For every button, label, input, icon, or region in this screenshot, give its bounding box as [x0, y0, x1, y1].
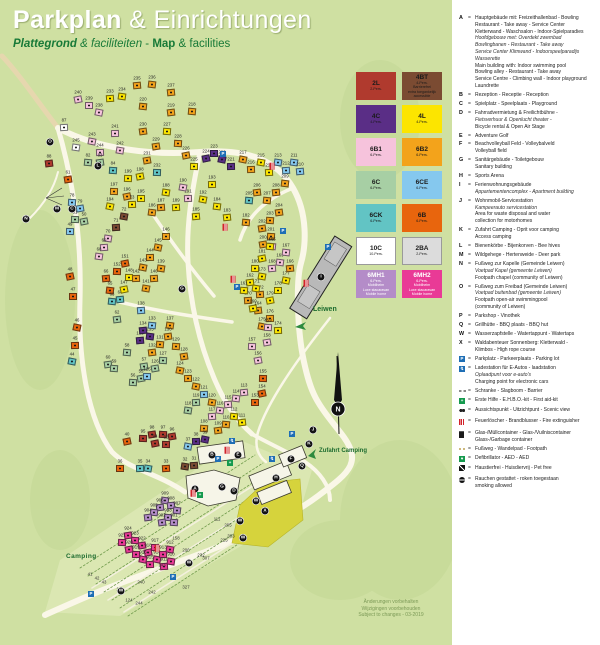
plot-number: 128 [180, 348, 187, 353]
plot [164, 332, 173, 340]
plot [167, 432, 176, 440]
legend-entry-text: Wohnmobil-ServicestationKampeerauto serv… [475, 198, 597, 225]
legend-entry-line: Wasserette [475, 56, 597, 63]
plot-number: 236 [148, 76, 155, 81]
plot [192, 438, 200, 445]
legend-entry-line: Restaurant - Take away - Service Center [475, 22, 597, 29]
legend-entry-line: Rezeption - Receptie - Reception [475, 92, 597, 99]
legend-entry-line: Wildgehege - Hertenweide - Deer park [475, 252, 597, 259]
map-footnote: Änderungen vorbehaltenWijzigingen voorbe… [330, 599, 452, 619]
plot-number: 174 [274, 322, 281, 327]
plot-number: 204 [275, 204, 282, 209]
legend-entry-text: Adventure Golf [475, 133, 597, 140]
plot [124, 175, 132, 182]
legend-cell-sub: 2-Pers. [370, 87, 382, 91]
plot-number: 72 [122, 208, 127, 213]
legend-letter-g: G [459, 157, 468, 171]
legend-entry-line: Ladestation für E-Autos - laadstation [475, 365, 597, 372]
equals-sign: = [468, 407, 475, 416]
plot [265, 169, 273, 176]
equals-sign: = [468, 252, 475, 259]
legend-cell-sub: accessible [414, 94, 431, 98]
legend-symbol [459, 430, 468, 444]
petfree-icon [459, 465, 465, 471]
plot-number: 195 [137, 190, 144, 195]
plot-number: 211 [291, 154, 298, 159]
facility-marker-i: I [318, 274, 325, 281]
plot-number: 917 [151, 539, 158, 544]
legend-letter-n: N [459, 261, 468, 281]
plot-number: 124 [176, 362, 183, 367]
legend-entry-line: Rauchen gestattet - roken toegestaan [475, 476, 597, 483]
equals-sign: = [468, 227, 475, 241]
legend-cell-6mh2: 6MH26-Pers.MobilheimLuxe stacaravanMobil… [402, 270, 442, 298]
plot-number: 907 [173, 502, 180, 507]
legend-entry: =Feuerlöscher - Brandblusser - Fire exti… [459, 418, 597, 428]
plot [139, 127, 148, 135]
plot-number: 93 [164, 436, 169, 441]
pitch-number: 242 [148, 590, 155, 595]
plot [105, 202, 114, 210]
plot-number: 31 [192, 457, 197, 462]
plot [139, 435, 147, 442]
plot [148, 208, 157, 216]
plot [110, 188, 118, 195]
plot-number: 194 [106, 198, 113, 203]
plot [157, 264, 166, 272]
plot-number: 209 [281, 175, 288, 180]
plot-number: 32 [183, 458, 188, 463]
pitch-number: 124 [125, 598, 132, 603]
plot [238, 419, 247, 426]
legend-cell-6b1: 6B16-Pers. [356, 138, 396, 166]
plot-number: 116 [217, 402, 224, 407]
legend-cell-6ce: 6CE6-Pers. [402, 171, 442, 199]
legend-entry-line: Bicycle rental & Open Air Stage [475, 124, 597, 131]
title-main: Parkplan [13, 6, 122, 34]
equals-sign: = [468, 198, 475, 225]
plot [123, 349, 132, 356]
legend-entry-text: Fußweg zur Kapelle (Gemeinde Leiwen)Voet… [475, 261, 597, 281]
legend-entry-text: Spielplatz - Speelplaats - Playground [475, 101, 597, 108]
plot [162, 188, 171, 196]
plot-number: 159 [264, 319, 271, 324]
pitch-number: 307 [202, 556, 209, 561]
plot [242, 219, 251, 226]
facility-marker-f: F [288, 456, 295, 463]
pitch-number: 303 [227, 534, 234, 539]
fireext-icon [459, 419, 464, 426]
plot [198, 195, 207, 203]
plot-number: 212 [282, 162, 289, 167]
plot-number: 129 [172, 338, 179, 343]
plot-number: 190 [179, 179, 186, 184]
plot-number: 152 [113, 263, 120, 268]
plot-number: 50 [82, 213, 87, 218]
legend-cell-sub: Mobile home [366, 292, 387, 296]
legend-cell-sub: 6-Pers. [370, 153, 382, 157]
parking-icon: P [234, 284, 240, 290]
plot-number: 35 [138, 460, 143, 465]
plot [266, 243, 275, 250]
plot [45, 160, 54, 167]
legend-letter-i: I [459, 182, 468, 196]
first-aid-icon: + [197, 492, 203, 498]
park-map: N 24023923824124324424287245233234235236… [0, 0, 452, 645]
legend-cell-code: 4L [418, 113, 426, 120]
watertap-marker: W [237, 518, 244, 525]
legend-letter-o: O [459, 284, 468, 311]
plot-number: 120 [208, 394, 215, 399]
plot-number: 33 [164, 460, 169, 465]
legend-letter-f: F [459, 141, 468, 155]
pitch-number: 205 [224, 523, 231, 528]
plot [148, 349, 157, 356]
plot-number: 97 [161, 426, 166, 431]
legend-cell-sub: 2-Pers. [416, 252, 428, 256]
plot [240, 287, 248, 294]
plot-number: 133 [148, 317, 155, 322]
plot-number: 62 [115, 311, 120, 316]
plot [60, 124, 68, 131]
legend-entry: I=FerienwohnungsgebäudeAppartementencomp… [459, 182, 597, 196]
plot-number: 166 [286, 260, 293, 265]
plot [268, 265, 277, 272]
smoking-icon [459, 477, 465, 483]
legend-cell-4l: 4L4-Pers. [402, 105, 442, 133]
plot-number: 183 [223, 209, 230, 214]
equals-sign: = [468, 397, 475, 404]
plot-number: 112 [231, 408, 238, 413]
plot [276, 258, 285, 266]
plot [167, 557, 176, 565]
legend-symbol: ♥ [459, 455, 468, 462]
legend-entry-text: Bienenkörbe - Bijenkorven - Bee hives [475, 243, 597, 250]
plot-number: 66 [104, 270, 109, 275]
plot-number: 207 [263, 192, 270, 197]
watertap-marker: W [240, 535, 247, 542]
legend-symbol: ↯ [459, 365, 468, 385]
subtitle-en: Map [152, 38, 175, 50]
plot [167, 109, 176, 116]
plot-number: 134 [139, 322, 146, 327]
plot [240, 389, 249, 396]
plot [94, 108, 103, 116]
plot-number: 177 [282, 272, 289, 277]
plot-number: 237 [167, 84, 174, 89]
legend-entry-line: Service Center Klimwand - Indoorspeelpar… [475, 49, 597, 56]
plot-number: 61 [66, 171, 71, 176]
plot-number: 127 [159, 352, 166, 357]
plot [266, 217, 274, 224]
equals-sign: = [468, 365, 475, 385]
plot [150, 364, 159, 372]
legend-entry-text: Fußweg - Wandelpad - Footpath [475, 446, 597, 453]
equals-sign: = [468, 157, 475, 171]
plot [274, 158, 283, 166]
legend-entry-line: Voetpad Kapel (gemeente Leiwen) [475, 268, 597, 275]
plot [113, 316, 122, 323]
watertap-marker: W [118, 588, 125, 595]
legend-entry: =Rauchen gestattet - roken toegestaansmo… [459, 476, 597, 490]
plot [181, 462, 190, 470]
plot-number: 179 [266, 292, 273, 297]
legend-entry-text: Schranke - Slagboom - Barrier [475, 388, 597, 395]
zufahrt-camping-label: Zufahrt Camping [319, 448, 367, 454]
parking-icon: P [170, 574, 176, 580]
legend-entry-line: Fußweg zum Freibad (Gemeinde Leiwen) [475, 284, 597, 291]
plot-number: 34 [146, 460, 151, 465]
svg-text:N: N [335, 407, 340, 414]
plot [139, 327, 148, 334]
plot [157, 204, 165, 211]
legend-entry-line: Sanitary building [475, 164, 597, 171]
footnote-line: Subject to changes - 03-2019 [330, 612, 452, 619]
plot [150, 275, 158, 282]
plot-number: 108 [200, 420, 207, 425]
plot-number: 88 [47, 155, 52, 160]
legend-entry-line: Service Centre - Climbing wall - Indoor … [475, 76, 597, 83]
plot [210, 150, 218, 157]
plot [248, 343, 256, 350]
plot [115, 146, 124, 154]
zufahrt-arrow-icon [308, 449, 316, 459]
plot [286, 265, 295, 272]
plot [132, 275, 140, 282]
plot-number: 186 [148, 204, 155, 209]
legend-symbol: P [459, 356, 468, 363]
plot-number: 146 [162, 228, 169, 233]
equals-sign: = [468, 92, 475, 99]
plot [247, 166, 255, 173]
plot-number: 56 [131, 374, 136, 379]
legend-symbol [459, 388, 468, 395]
plot-number: 125 [143, 368, 150, 373]
legend-entry-line: Charging point for electronic cars [475, 379, 597, 386]
equals-sign: = [468, 465, 475, 474]
legend-cell-2l: 2L2-Pers. [356, 72, 396, 100]
plot-number: 224 [202, 150, 209, 155]
plot-number: 167 [282, 244, 289, 249]
plot-number: 78 [70, 194, 75, 199]
plot-number: 197 [110, 183, 117, 188]
legend-entry-text: Defibrillator - AED - AED [475, 455, 597, 462]
plot-number: 202 [258, 220, 265, 225]
legend-entry-line: Spielplatz - Speelplaats - Playground [475, 101, 597, 108]
plot [253, 189, 262, 196]
plot [188, 108, 197, 115]
legend-cell-code: 6B [418, 212, 426, 219]
plot-number: 215 [257, 154, 264, 159]
plot-number: 227 [163, 123, 170, 128]
legend-entry-text: Fahrradvermietung & Freilichtbühne -Fiet… [475, 110, 597, 130]
plot [163, 128, 171, 135]
plot-number: 192 [199, 191, 206, 196]
plot [162, 465, 170, 472]
plot-number: 221 [227, 158, 234, 163]
plot-number: 38 [194, 433, 199, 438]
legend-letter-c: C [459, 101, 468, 108]
legend-cell-sub: 6-Pers. [416, 153, 428, 157]
plot-number: 210 [296, 163, 303, 168]
plot [208, 413, 216, 420]
plot-number: 238 [95, 104, 102, 109]
plot [66, 228, 74, 235]
plot-number: 921 [118, 534, 125, 539]
legend-entry-text: Sanitärgebäude - ToiletgebouwSanitary bu… [475, 157, 597, 171]
legend-entry-line: Volleyball field [475, 148, 597, 155]
plot [172, 343, 180, 350]
title-rest: & Einrichtungen [122, 6, 312, 34]
legend-cell-sub: 4-Pers. [416, 120, 428, 124]
plot [119, 212, 128, 220]
legend-letter-w: W [459, 331, 468, 338]
plot-number: 185 [192, 208, 199, 213]
legend-entry: P=Parkshop - Vinothek [459, 313, 597, 320]
pitch-number: 111 [214, 517, 221, 522]
plot [128, 201, 136, 208]
plot-number: 141 [142, 280, 149, 285]
legend-letter-a: A [459, 15, 468, 90]
legend-cell-code: 6CE [416, 179, 429, 186]
facilities-legend-entries: A=Hauptgebäude mit: Freizeithallenbad - … [459, 15, 597, 490]
legend-entry-line: Parkshop - Vinothek [475, 313, 597, 320]
plot-number: 182 [242, 214, 249, 219]
facility-marker-h: H [273, 475, 280, 482]
plot-number: 138 [137, 302, 144, 307]
plot-number: 225 [190, 158, 197, 163]
legend-entry: X=Waldabenteuer Sonnenberg: Kletterwald … [459, 340, 597, 354]
legend-entry-text: Ladestation für E-Autos - laadstationOpl… [475, 365, 597, 385]
legend-entry: B=Rezeption - Receptie - Reception [459, 92, 597, 99]
legend-entry: Q=Grillhütte - BBQ plaats - BBQ hut [459, 322, 597, 329]
legend-entry-text: Wildgehege - Hertenweide - Deer park [475, 252, 597, 259]
plot-number: 904 [144, 509, 151, 514]
fire-extinguisher-icon [231, 276, 236, 283]
plot [264, 324, 272, 331]
plot-number: 203 [266, 212, 273, 217]
legend-cell-sub: 6-Pers. [416, 219, 428, 223]
legend-entry-line: Glass-/Garbage container [475, 437, 597, 444]
equals-sign: = [468, 446, 475, 453]
plot-number: 58 [125, 344, 130, 349]
plot [87, 137, 96, 145]
legend-entry-line: Grillhütte - BBQ plaats - BBQ hut [475, 322, 597, 329]
plot-number: 157 [248, 338, 255, 343]
plot [137, 195, 145, 202]
parking-icon: P [88, 591, 94, 597]
plot-number: 47 [71, 288, 76, 293]
equals-sign: = [468, 388, 475, 395]
plot [252, 284, 261, 292]
plot-number: 208 [272, 184, 279, 189]
pitch-number: 158 [172, 536, 179, 541]
plot-number: 60 [106, 356, 111, 361]
legend-entry: C=Spielplatz - Speelplaats - Playground [459, 101, 597, 108]
plot [207, 398, 216, 406]
subtitle-nl: Plattegrond [13, 38, 77, 50]
plot [156, 341, 165, 348]
legend-symbol: + [459, 397, 468, 404]
fire-extinguisher-icon [225, 447, 230, 454]
equals-sign: = [468, 15, 475, 90]
plot-number: 71 [114, 219, 119, 224]
plot-number: 168 [268, 260, 275, 265]
legend-entry-line: Access camping [475, 234, 597, 241]
legend-entry-line: Beachvolleyball Feld - Volleybalveld [475, 141, 597, 148]
legend-entry-line: Defibrillator - AED - AED [475, 455, 597, 462]
plot-number: 234 [118, 88, 125, 93]
legend-entry-line: Klimbos - High rope course [475, 347, 597, 354]
plot-number: 173 [258, 268, 265, 273]
plot [251, 399, 259, 406]
plot-number: 229 [152, 138, 159, 143]
footnote-line: Wijzigingen voorbehouden [330, 606, 452, 613]
equals-sign: = [468, 340, 475, 354]
plot [69, 293, 77, 300]
plot-number: 36 [118, 460, 123, 465]
facility-marker-m: M [54, 206, 61, 213]
pitch-number: 143 [158, 563, 165, 568]
legend-letter-l: L [459, 243, 468, 250]
plot [116, 465, 124, 472]
plot-number: 46 [75, 319, 80, 324]
plot [162, 441, 170, 448]
plot [281, 276, 290, 284]
plot [139, 103, 148, 110]
connector-road-2 [150, 210, 214, 296]
charging-icon: ↯ [459, 366, 465, 372]
parking-icon: P [280, 228, 286, 234]
plot-number: 130 [164, 328, 171, 333]
pitch-number: 43 [102, 580, 107, 585]
parking-icon: P [289, 431, 295, 437]
legend-entry-line: Fußweg zur Kapelle (Gemeinde Leiwen) [475, 261, 597, 268]
plot-number: 39 [203, 431, 208, 436]
plot [227, 163, 235, 170]
legend-entry: =Fußweg - Wandelpad - Footpath [459, 446, 597, 453]
plot-number: 126 [151, 360, 158, 365]
fire-extinguisher-icon [155, 545, 160, 552]
legend-cell-sub: 6-Pers. [416, 186, 428, 190]
pitch-number: 41 [88, 572, 93, 577]
plot-number: 201 [267, 228, 274, 233]
plot [191, 382, 200, 390]
equals-sign: = [468, 455, 475, 462]
facility-marker-c: C [69, 206, 76, 213]
legend-entry: E=Adventure Golf [459, 133, 597, 140]
equals-sign: = [468, 261, 475, 281]
plot-number: 235 [133, 77, 140, 82]
legend-cell-code: 2BA [415, 245, 428, 252]
plot-number: 922 [138, 537, 145, 542]
plot [144, 514, 153, 521]
plot-number: 132 [148, 344, 155, 349]
legend-entry-line: Hoofdgebouw met: Overdekt zwembad [475, 35, 597, 42]
plot-number: 122 [192, 378, 199, 383]
plot [172, 204, 180, 211]
legend-entry-text: Haustierfrei - Huisdiervrij - Pet free [475, 465, 597, 474]
equals-sign: = [468, 356, 475, 363]
plot [216, 406, 225, 414]
legend-entry: K=Zufahrt Camping - Oprit voor campingAc… [459, 227, 597, 241]
plot [214, 426, 223, 434]
plot [238, 155, 247, 163]
facility-marker-q: Q [299, 463, 306, 470]
legend-entry-line: Main building with: Indoor swimming pool [475, 63, 597, 70]
plot-number: 155 [259, 370, 266, 375]
plot [133, 82, 142, 89]
